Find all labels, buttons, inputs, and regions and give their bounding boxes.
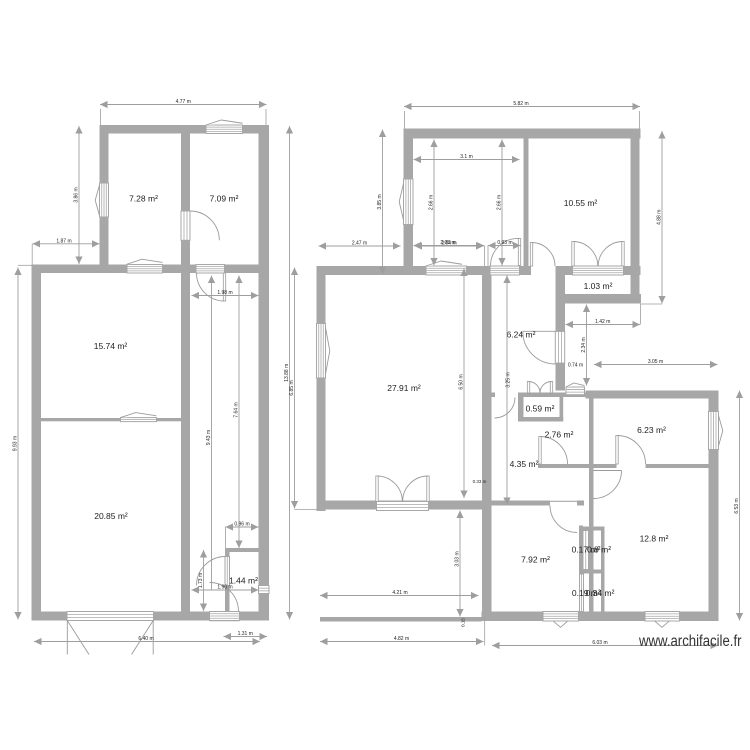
svg-text:3.1 m: 3.1 m [460,154,473,160]
svg-text:2.66 m: 2.66 m [497,195,503,210]
svg-text:4.77 m: 4.77 m [176,99,191,105]
svg-text:3.05 m: 3.05 m [648,359,663,365]
svg-text:6.50 m: 6.50 m [459,374,465,389]
svg-text:0.96 m: 0.96 m [234,522,249,528]
svg-text:0.34 m²: 0.34 m² [586,588,615,598]
svg-text:2.76 m²: 2.76 m² [545,430,574,440]
svg-text:6.40 m: 6.40 m [138,636,153,642]
svg-text:6.85 m: 6.85 m [289,380,295,395]
svg-text:3.25 m: 3.25 m [506,372,512,387]
svg-text:1.03 m²: 1.03 m² [584,281,613,291]
svg-text:6.03 m: 6.03 m [592,640,607,646]
svg-text:7.28 m²: 7.28 m² [129,194,158,204]
svg-text:7.64 m: 7.64 m [234,402,240,417]
svg-text:1.87 m: 1.87 m [56,238,71,244]
svg-text:6.53 m: 6.53 m [734,498,740,513]
svg-text:7.92 m²: 7.92 m² [521,555,550,565]
svg-text:0.74 m: 0.74 m [568,363,583,369]
svg-text:1.42 m: 1.42 m [595,319,610,325]
svg-text:1.44 m²: 1.44 m² [229,576,258,586]
svg-text:3.85 m: 3.85 m [377,194,383,209]
svg-text:4.21 m: 4.21 m [392,590,407,596]
svg-text:0.15: 0.15 [461,618,466,627]
svg-text:3.03 m: 3.03 m [455,551,461,566]
svg-text:1.98 m: 1.98 m [217,290,232,296]
svg-text:0.59 m²: 0.59 m² [526,404,555,414]
svg-text:4.35 m²: 4.35 m² [510,459,539,469]
svg-text:15.74 m²: 15.74 m² [94,341,128,351]
svg-text:0.93 m: 0.93 m [497,240,512,246]
svg-text:12.8 m²: 12.8 m² [640,534,669,544]
svg-text:www.archifacile.fr: www.archifacile.fr [638,633,741,650]
svg-text:2.66 m: 2.66 m [429,195,435,210]
svg-text:2.04 m: 2.04 m [441,241,456,247]
svg-text:2.47 m: 2.47 m [352,241,367,247]
svg-text:1.90 m: 1.90 m [217,585,232,591]
svg-text:1.31 m: 1.31 m [238,631,253,637]
svg-text:20.85 m²: 20.85 m² [94,511,128,521]
svg-text:3.86 m: 3.86 m [74,187,80,202]
svg-text:2.34 m: 2.34 m [581,337,587,352]
svg-text:0.33 m: 0.33 m [473,479,487,484]
svg-text:9.43 m: 9.43 m [206,430,212,445]
svg-text:9.93 m: 9.93 m [13,436,19,451]
svg-text:27.91 m²: 27.91 m² [387,383,421,393]
svg-text:5.82 m: 5.82 m [513,101,528,107]
svg-text:13.88 m: 13.88 m [284,364,290,382]
svg-text:4.88 m: 4.88 m [657,210,663,225]
svg-text:0.8 m²: 0.8 m² [587,545,611,555]
svg-text:4.82 m: 4.82 m [394,636,409,642]
svg-text:10.55 m²: 10.55 m² [564,198,598,208]
svg-text:6.24 m²: 6.24 m² [507,330,536,340]
svg-text:1.73 m: 1.73 m [198,573,204,588]
svg-text:6.23 m²: 6.23 m² [637,425,666,435]
svg-text:7.09 m²: 7.09 m² [210,194,239,204]
